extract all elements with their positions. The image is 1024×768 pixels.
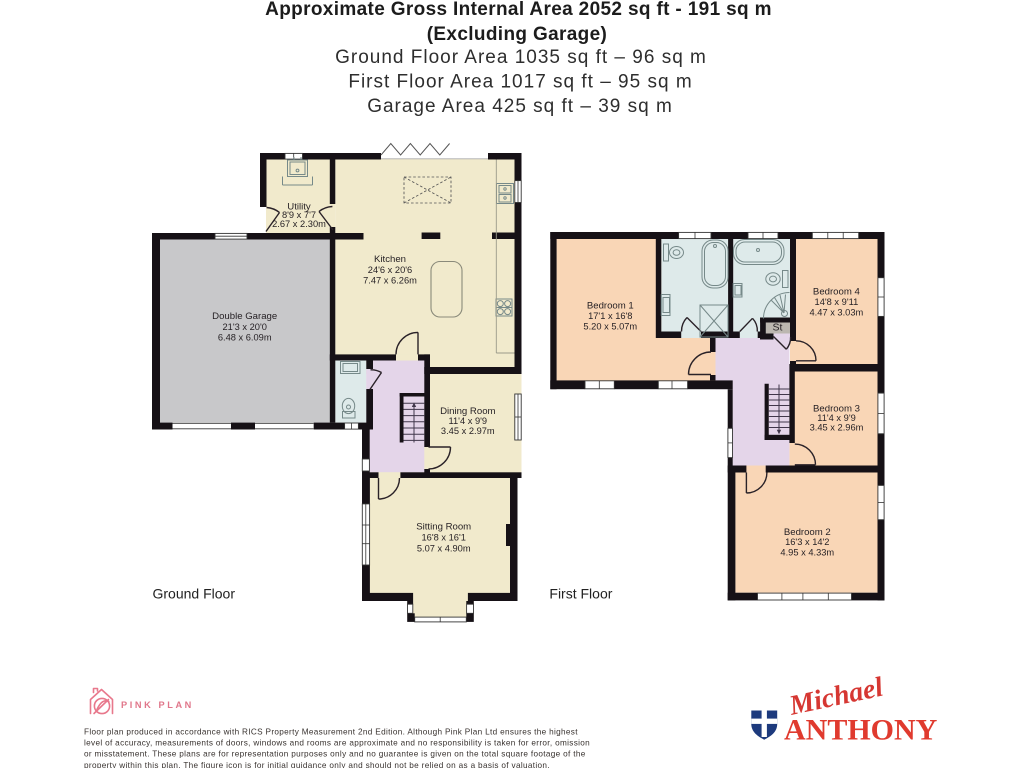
- svg-text:2.67 x 2.30m: 2.67 x 2.30m: [272, 219, 326, 229]
- svg-text:ANTHONY: ANTHONY: [784, 714, 938, 747]
- svg-text:21'3 x 20'0: 21'3 x 20'0: [223, 322, 267, 332]
- svg-text:First Floor Area 1017 sq ft –: First Floor Area 1017 sq ft – 95 sq m: [348, 72, 692, 93]
- svg-text:Bedroom 4: Bedroom 4: [813, 286, 861, 297]
- svg-text:property within this plan. The: property within this plan. The figure ic…: [84, 761, 550, 768]
- svg-text:16'3 x 14'2: 16'3 x 14'2: [785, 537, 829, 547]
- svg-text:14'8 x 9'11: 14'8 x 9'11: [815, 297, 859, 307]
- svg-text:5.07 x 4.90m: 5.07 x 4.90m: [417, 544, 471, 554]
- svg-text:7.47 x 6.26m: 7.47 x 6.26m: [363, 276, 417, 286]
- svg-text:11'4 x 9'9: 11'4 x 9'9: [817, 413, 856, 423]
- svg-text:Ground Floor Area 1035 sq ft –: Ground Floor Area 1035 sq ft – 96 sq m: [335, 47, 707, 68]
- svg-text:Approximate Gross Internal Are: Approximate Gross Internal Area 2052 sq …: [265, 0, 772, 20]
- svg-text:3.45 x 2.97m: 3.45 x 2.97m: [441, 426, 495, 436]
- svg-text:24'6 x 20'6: 24'6 x 20'6: [368, 265, 412, 275]
- svg-text:Kitchen: Kitchen: [374, 254, 406, 265]
- svg-text:PINK PLAN: PINK PLAN: [121, 700, 194, 710]
- svg-text:17'1 x 16'8: 17'1 x 16'8: [588, 311, 632, 321]
- svg-text:5.20 x 5.07m: 5.20 x 5.07m: [583, 322, 637, 332]
- svg-text:11'4 x 9'9: 11'4 x 9'9: [449, 416, 488, 426]
- svg-text:Garage Area 425 sq ft – 39 sq: Garage Area 425 sq ft – 39 sq m: [367, 96, 673, 117]
- svg-text:Sitting Room: Sitting Room: [416, 522, 471, 533]
- svg-text:16'8 x 16'1: 16'8 x 16'1: [422, 533, 466, 543]
- svg-text:Double Garage: Double Garage: [212, 311, 277, 322]
- svg-text:St: St: [773, 322, 783, 334]
- svg-text:Ground Floor: Ground Floor: [153, 586, 236, 602]
- svg-text:(Excluding Garage): (Excluding Garage): [427, 24, 608, 45]
- svg-text:4.95 x 4.33m: 4.95 x 4.33m: [780, 548, 834, 558]
- svg-text:First Floor: First Floor: [549, 586, 612, 602]
- svg-text:Floor plan produced in accorda: Floor plan produced in accordance with R…: [84, 727, 578, 736]
- svg-text:level of accuracy, measurement: level of accuracy, measurements of doors…: [84, 739, 590, 748]
- svg-text:3.45 x 2.96m: 3.45 x 2.96m: [810, 422, 864, 432]
- svg-text:or misstatement. These plans a: or misstatement. These plans are for rep…: [84, 750, 586, 759]
- svg-text:6.48 x 6.09m: 6.48 x 6.09m: [218, 333, 272, 343]
- svg-text:4.47 x 3.03m: 4.47 x 3.03m: [810, 308, 864, 318]
- svg-text:Bedroom 1: Bedroom 1: [587, 301, 634, 312]
